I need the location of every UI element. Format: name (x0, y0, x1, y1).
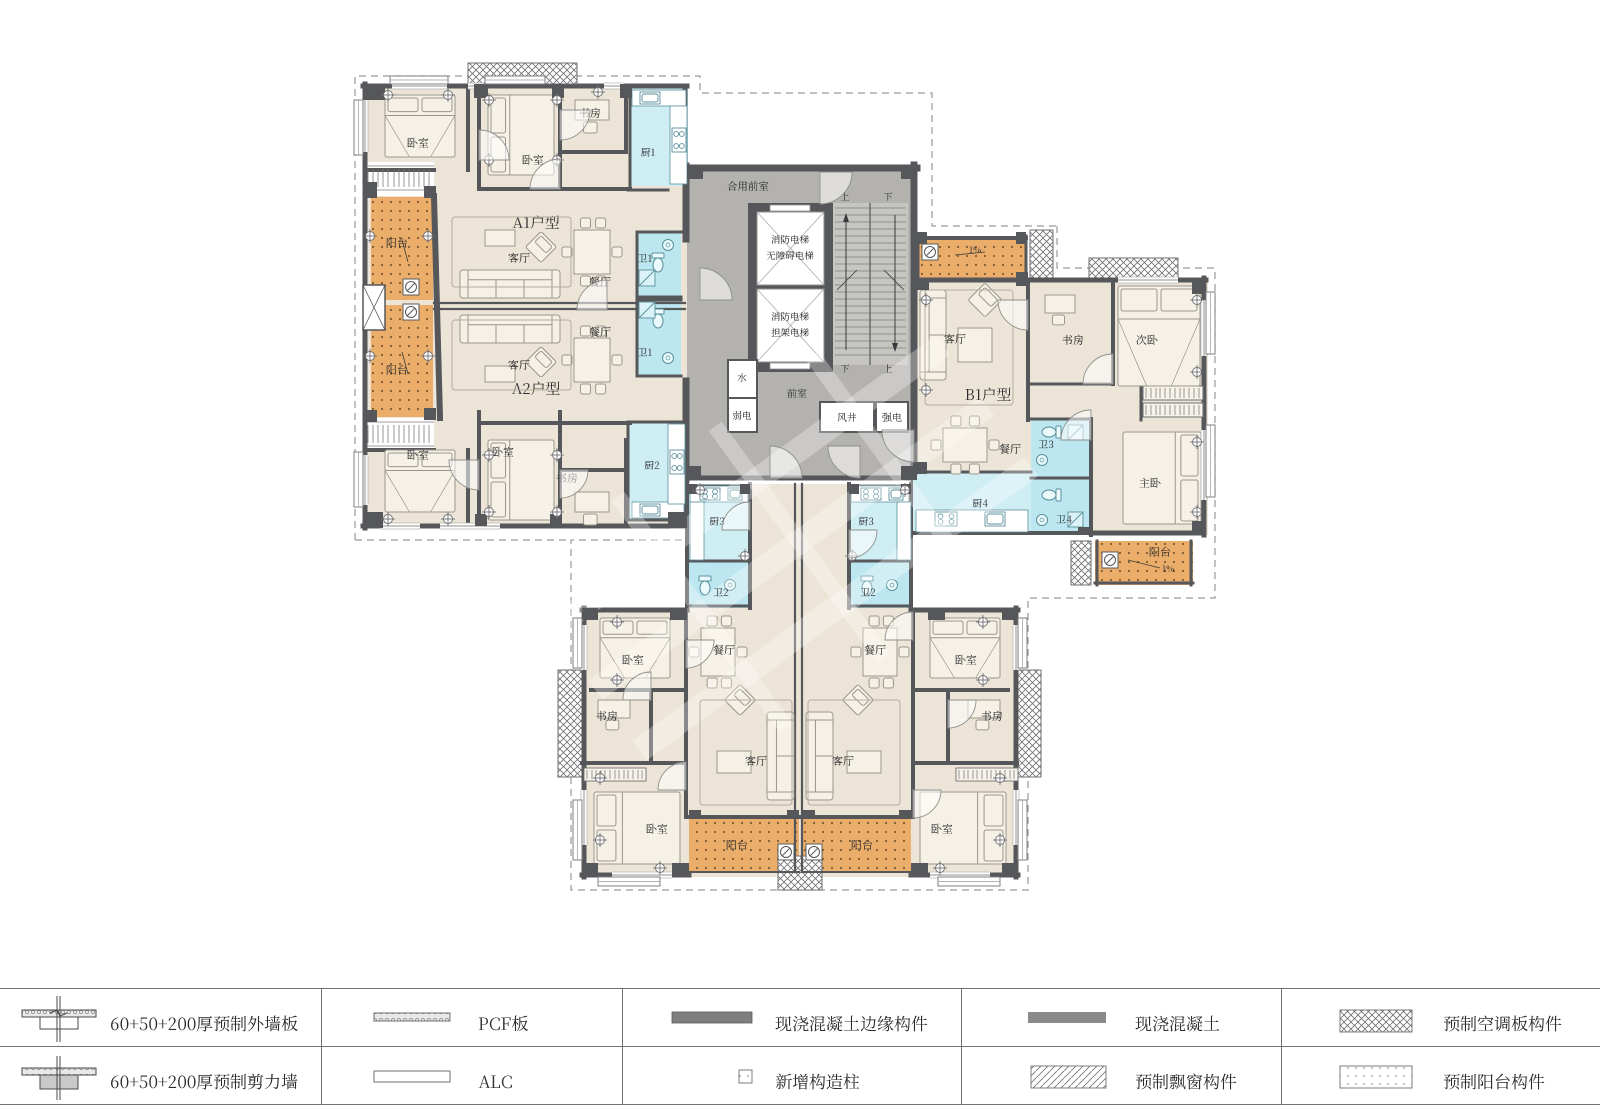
svg-text:卫2: 卫2 (860, 584, 876, 599)
svg-text:预制空调板构件: 预制空调板构件 (1443, 1010, 1562, 1035)
svg-text:卫2: 卫2 (713, 584, 729, 599)
svg-text:现浇混凝土: 现浇混凝土 (1135, 1010, 1220, 1035)
svg-text:下: 下 (840, 362, 849, 375)
svg-text:卧室: 卧室 (955, 652, 977, 668)
svg-text:卧室: 卧室 (622, 652, 644, 668)
svg-text:厨4: 厨4 (972, 495, 988, 510)
svg-text:新增构造柱: 新增构造柱 (775, 1068, 860, 1093)
svg-text:B1户型: B1户型 (964, 384, 1011, 405)
svg-text:书房: 书房 (596, 708, 618, 724)
svg-text:餐厅: 餐厅 (999, 441, 1021, 457)
svg-text:阳台: 阳台 (726, 837, 748, 853)
svg-text:A2户型: A2户型 (511, 378, 560, 399)
svg-text:A1户型: A1户型 (512, 212, 560, 233)
svg-text:卧室: 卧室 (646, 821, 668, 837)
svg-text:弱电: 弱电 (732, 408, 752, 422)
svg-text:书房: 书房 (1062, 332, 1084, 348)
svg-text:预制飘窗构件: 预制飘窗构件 (1135, 1068, 1237, 1093)
svg-text:厨1: 厨1 (641, 144, 656, 159)
svg-text:客厅: 客厅 (508, 250, 530, 266)
svg-text:主卧: 主卧 (1139, 475, 1161, 491)
svg-text:客厅: 客厅 (944, 331, 966, 347)
svg-text:客厅: 客厅 (508, 357, 530, 373)
svg-text:卫1: 卫1 (638, 344, 653, 359)
svg-text:阳台: 阳台 (1149, 544, 1171, 560)
svg-text:消防电梯: 消防电梯 (771, 232, 810, 246)
svg-text:卫3: 卫3 (1038, 436, 1054, 451)
svg-text:消防电梯: 消防电梯 (771, 309, 810, 323)
svg-text:水: 水 (737, 370, 747, 384)
svg-text:卧室: 卧室 (931, 821, 953, 837)
svg-text:厨3: 厨3 (858, 513, 874, 528)
svg-text:厨2: 厨2 (644, 457, 660, 472)
svg-text:风井: 风井 (837, 409, 857, 424)
svg-text:强电: 强电 (881, 409, 902, 424)
svg-text:餐厅: 餐厅 (864, 642, 886, 658)
svg-text:下: 下 (883, 190, 892, 203)
svg-text:PCF板: PCF板 (478, 1010, 528, 1035)
svg-text:无障碍电梯: 无障碍电梯 (766, 248, 814, 262)
svg-text:卧室: 卧室 (407, 135, 429, 151)
svg-text:餐厅: 餐厅 (713, 642, 735, 658)
svg-text:上: 上 (883, 362, 892, 375)
svg-text:阳台: 阳台 (851, 837, 873, 853)
svg-text:1%: 1% (969, 243, 982, 256)
svg-text:现浇混凝土边缘构件: 现浇混凝土边缘构件 (775, 1010, 928, 1035)
svg-text:餐厅: 餐厅 (589, 324, 611, 340)
svg-text:卧室: 卧室 (492, 444, 514, 460)
svg-text:书房: 书房 (981, 708, 1003, 724)
svg-text:客厅: 客厅 (745, 753, 767, 769)
svg-text:次卧: 次卧 (1136, 332, 1158, 348)
svg-text:ALC: ALC (478, 1068, 513, 1093)
svg-text:1%: 1% (1162, 562, 1175, 575)
svg-text:担架电梯: 担架电梯 (771, 325, 810, 339)
svg-text:前室: 前室 (787, 385, 807, 400)
svg-text:预制阳台构件: 预制阳台构件 (1443, 1068, 1545, 1093)
svg-text:卧室: 卧室 (407, 447, 429, 463)
svg-text:卫4: 卫4 (1056, 511, 1072, 526)
svg-text:60+50+200厚预制外墙板: 60+50+200厚预制外墙板 (110, 1010, 298, 1035)
svg-text:客厅: 客厅 (832, 753, 854, 769)
svg-text:阳台: 阳台 (386, 362, 408, 378)
svg-text:合用前室: 合用前室 (727, 179, 769, 194)
svg-text:60+50+200厚预制剪力墙: 60+50+200厚预制剪力墙 (110, 1068, 298, 1093)
svg-text:卫1: 卫1 (638, 250, 653, 265)
